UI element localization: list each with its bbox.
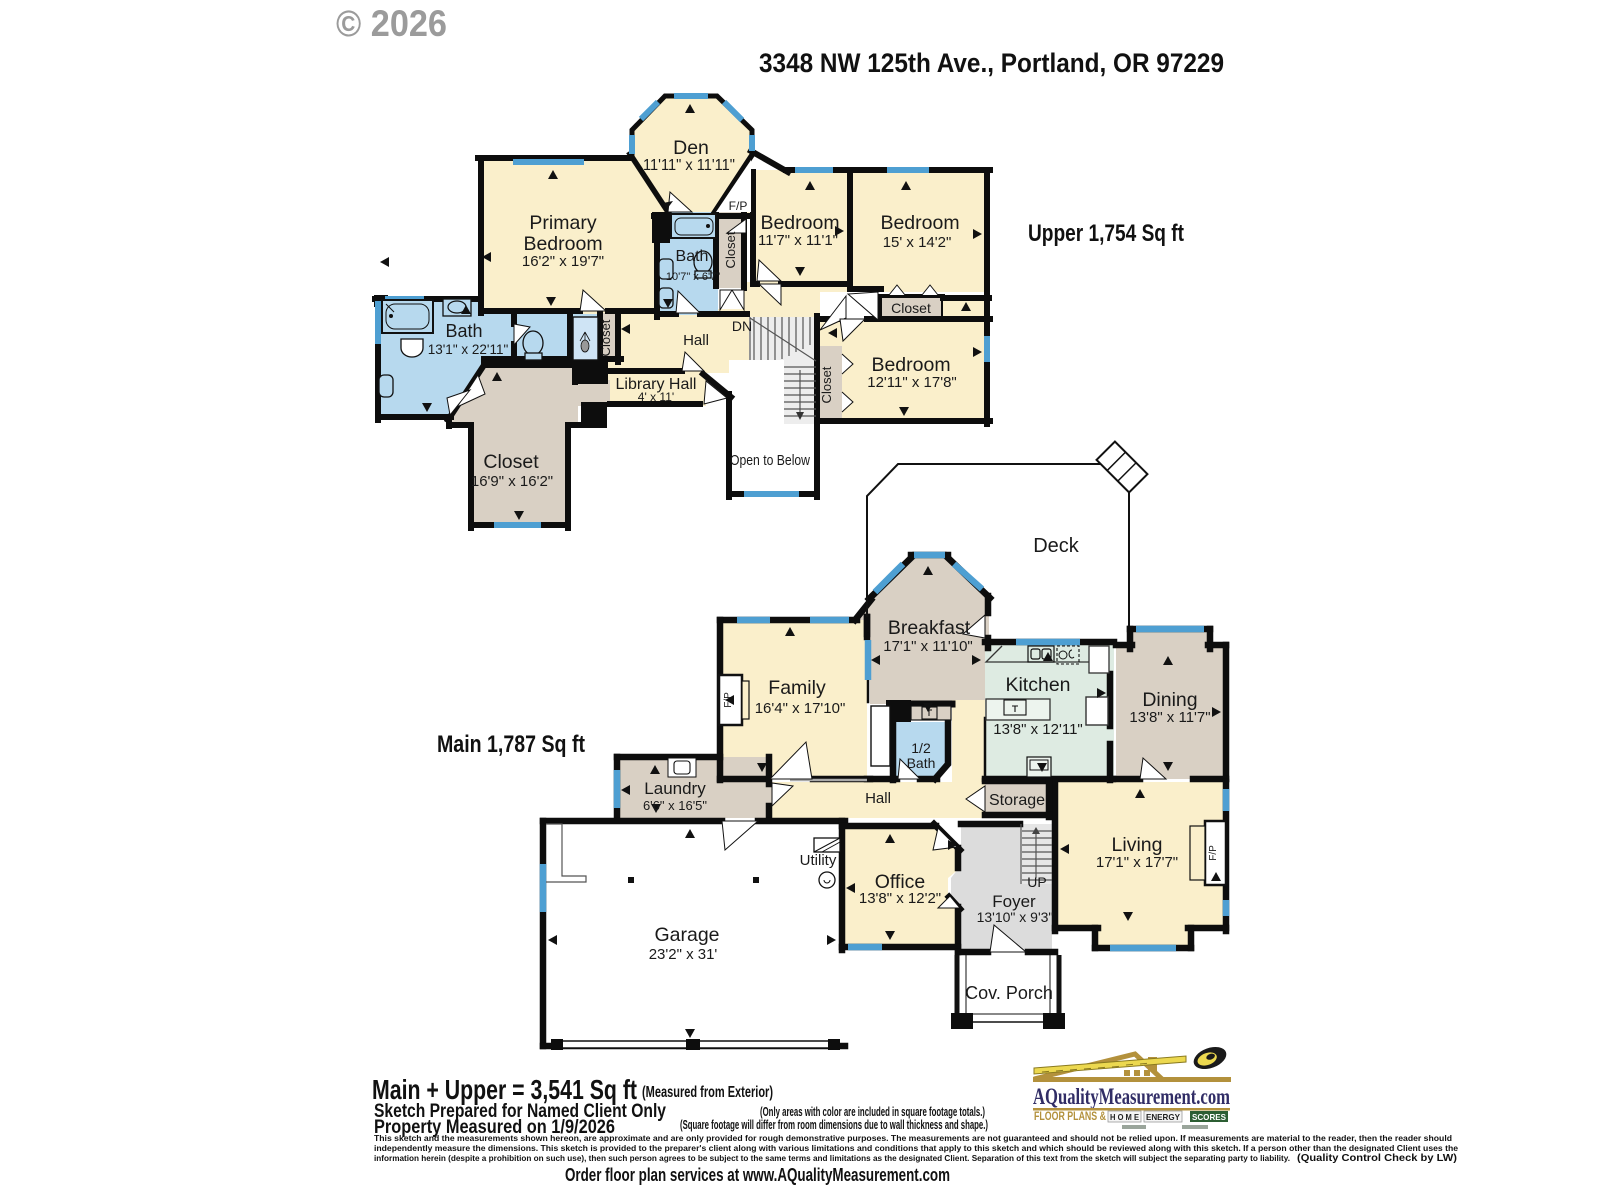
svg-text:17'1" x 11'10": 17'1" x 11'10" <box>883 638 973 655</box>
svg-text:H O M E: H O M E <box>1110 1112 1139 1122</box>
svg-text:Bedroom: Bedroom <box>523 233 602 255</box>
svg-text:Closet: Closet <box>819 366 834 403</box>
svg-text:16'2" x 19'7": 16'2" x 19'7" <box>522 253 604 270</box>
svg-text:Closet: Closet <box>598 319 613 356</box>
svg-text:11'11" x 11'11": 11'11" x 11'11" <box>643 157 735 174</box>
svg-text:Hall: Hall <box>683 332 709 349</box>
svg-text:information herein (despite a: information herein (despite a prohibitio… <box>374 1153 1290 1163</box>
svg-text:Living: Living <box>1112 834 1163 856</box>
svg-text:Storage: Storage <box>989 792 1045 809</box>
svg-text:Den: Den <box>673 137 709 159</box>
svg-text:17'1" x 17'7": 17'1" x 17'7" <box>1096 854 1178 871</box>
svg-text:16'9" x 16'2": 16'9" x 16'2" <box>471 473 553 490</box>
svg-text:13'8" x 11'7": 13'8" x 11'7" <box>1129 709 1210 726</box>
svg-text:Closet: Closet <box>891 300 931 316</box>
svg-text:Laundry: Laundry <box>644 779 706 798</box>
svg-text:Bedroom: Bedroom <box>871 354 950 376</box>
svg-text:(Square footage will differ fr: (Square footage will differ from room di… <box>680 1117 988 1132</box>
svg-text:Closet: Closet <box>723 231 738 268</box>
svg-text:ENERGY: ENERGY <box>1146 1112 1180 1122</box>
svg-text:Bath: Bath <box>907 755 936 771</box>
svg-text:6'6" x 16'5": 6'6" x 16'5" <box>643 798 707 813</box>
svg-text:Kitchen: Kitchen <box>1005 674 1070 696</box>
svg-text:Breakfast: Breakfast <box>888 617 971 639</box>
svg-text:Deck: Deck <box>1033 535 1080 557</box>
svg-text:1/2: 1/2 <box>911 740 931 756</box>
svg-text:(Quality Control Check by LW): (Quality Control Check by LW) <box>1297 1153 1457 1164</box>
svg-text:Bedroom: Bedroom <box>760 212 839 234</box>
svg-text:Main 1,787 Sq ft: Main 1,787 Sq ft <box>437 731 585 758</box>
svg-text:Bath: Bath <box>676 248 709 265</box>
svg-text:13'8" x 12'2": 13'8" x 12'2" <box>859 890 941 907</box>
svg-text:15' x 14'2": 15' x 14'2" <box>883 234 952 251</box>
svg-text:This sketch and the measuremen: This sketch and the measurements shown h… <box>374 1133 1452 1143</box>
svg-text:(Measured from Exterior): (Measured from Exterior) <box>642 1084 773 1101</box>
svg-text:Upper 1,754 Sq ft: Upper 1,754 Sq ft <box>1028 220 1184 247</box>
svg-text:13'8" x 12'11": 13'8" x 12'11" <box>993 721 1083 738</box>
svg-text:Bath: Bath <box>445 321 482 341</box>
svg-text:16'4" x 17'10": 16'4" x 17'10" <box>755 700 846 717</box>
svg-text:Order floor plan services at w: Order floor plan services at www.AQualit… <box>565 1165 950 1185</box>
svg-text:Hall: Hall <box>865 790 891 807</box>
svg-text:3348 NW 125th Ave., Portland,: 3348 NW 125th Ave., Portland, OR 97229 <box>759 48 1224 78</box>
svg-text:4' x 11': 4' x 11' <box>638 390 674 404</box>
svg-text:Dining: Dining <box>1142 689 1197 711</box>
svg-text:AQualityMeasurement.com: AQualityMeasurement.com <box>1033 1084 1230 1109</box>
svg-text:UP: UP <box>1027 874 1046 890</box>
svg-text:23'2" x 31': 23'2" x 31' <box>649 946 718 963</box>
svg-text:13'1" x 22'11": 13'1" x 22'11" <box>428 342 509 357</box>
svg-text:independently measure the dime: independently measure the dimensions. Th… <box>374 1143 1458 1153</box>
svg-text:Bedroom: Bedroom <box>880 212 959 234</box>
svg-text:DN: DN <box>732 318 752 334</box>
svg-text:F/P: F/P <box>1208 845 1219 861</box>
svg-text:13'10" x 9'3": 13'10" x 9'3" <box>977 909 1054 925</box>
svg-text:© 2026: © 2026 <box>336 3 447 44</box>
svg-text:Garage: Garage <box>654 924 719 946</box>
svg-text:12'11" x 17'8": 12'11" x 17'8" <box>867 374 957 391</box>
svg-text:FLOOR PLANS &: FLOOR PLANS & <box>1034 1109 1106 1123</box>
svg-text:Utility: Utility <box>800 852 837 869</box>
svg-text:SCORES: SCORES <box>1192 1112 1226 1122</box>
svg-text:Family: Family <box>768 677 826 699</box>
svg-text:Open to Below: Open to Below <box>730 452 810 469</box>
svg-text:Closet: Closet <box>483 451 539 473</box>
svg-text:Primary: Primary <box>529 212 596 234</box>
svg-text:10'7" x 6'7": 10'7" x 6'7" <box>666 271 720 283</box>
svg-text:F/P: F/P <box>729 199 748 213</box>
svg-text:11'7" x 11'1": 11'7" x 11'1" <box>758 232 838 249</box>
svg-text:Cov. Porch: Cov. Porch <box>965 983 1053 1003</box>
